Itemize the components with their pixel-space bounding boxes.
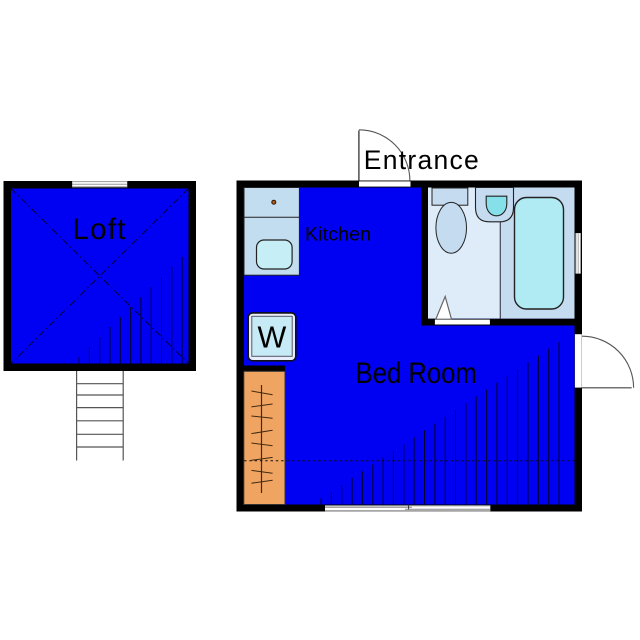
- svg-text:W: W: [258, 321, 287, 355]
- svg-text:Entrance: Entrance: [364, 145, 479, 175]
- svg-text:Loft: Loft: [73, 213, 126, 246]
- svg-text:Bed Room: Bed Room: [356, 356, 477, 389]
- svg-text:Kitchen: Kitchen: [305, 223, 371, 245]
